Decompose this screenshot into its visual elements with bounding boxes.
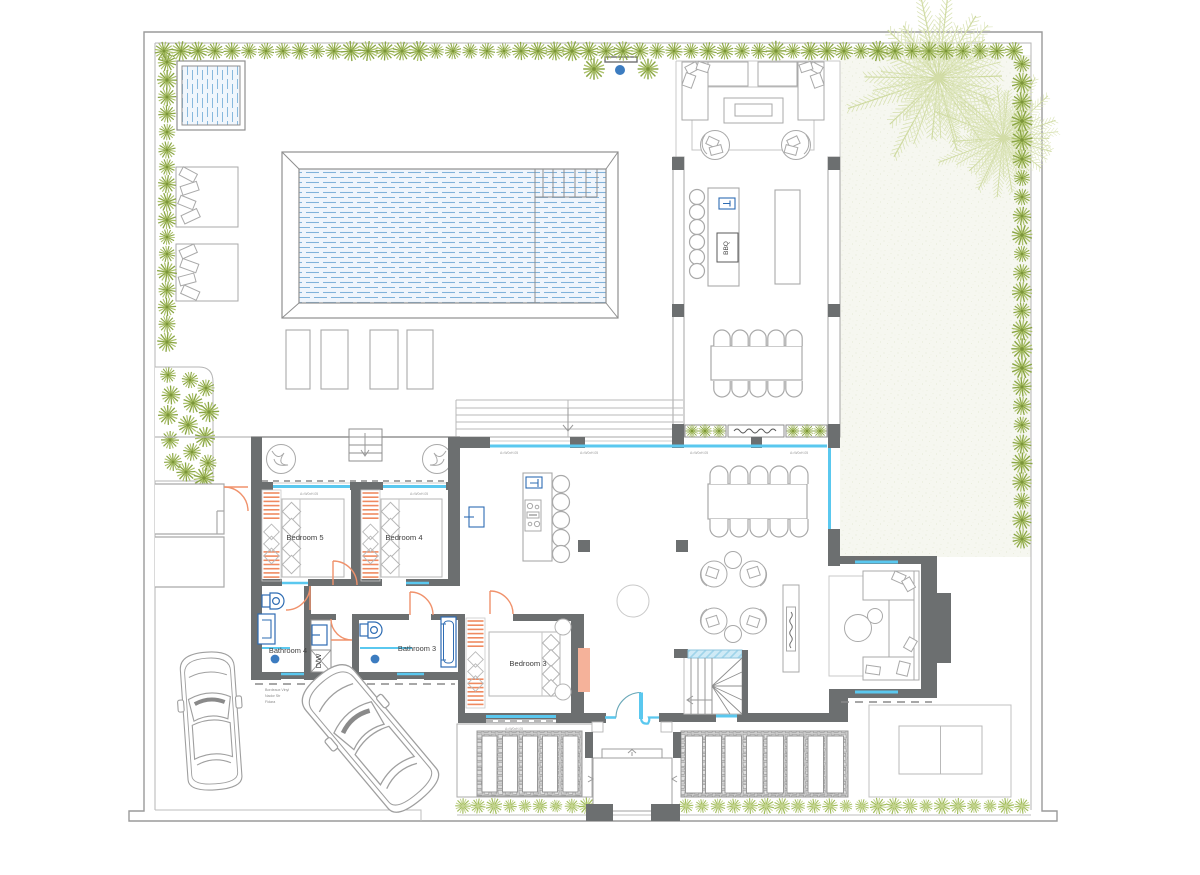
- svg-text:D/W: D/W: [314, 653, 323, 669]
- svg-text:A=W0xH.05: A=W0xH.05: [500, 451, 518, 455]
- svg-text:A=W0xH.05: A=W0xH.05: [690, 451, 708, 455]
- svg-text:BBQ: BBQ: [723, 241, 730, 255]
- svg-text:A=W0xH.05: A=W0xH.05: [410, 492, 428, 496]
- svg-text:Bathroom 4: Bathroom 4: [269, 646, 307, 655]
- svg-text:Fidara: Fidara: [265, 700, 275, 704]
- svg-text:Bordeaux Vinyl: Bordeaux Vinyl: [265, 688, 289, 692]
- svg-text:A=W0xH.05: A=W0xH.05: [300, 492, 318, 496]
- svg-text:Bedroom 4: Bedroom 4: [385, 533, 422, 542]
- svg-text:Bedroom 3: Bedroom 3: [509, 659, 546, 668]
- svg-text:Nador Str: Nador Str: [265, 694, 281, 698]
- svg-text:Bedroom 5: Bedroom 5: [286, 533, 323, 542]
- svg-text:Bathroom 3: Bathroom 3: [398, 644, 436, 653]
- svg-text:A=W0xH.05: A=W0xH.05: [580, 451, 598, 455]
- svg-text:A=W0xH.05: A=W0xH.05: [790, 451, 808, 455]
- svg-text:A=W0xH.05: A=W0xH.05: [505, 727, 523, 731]
